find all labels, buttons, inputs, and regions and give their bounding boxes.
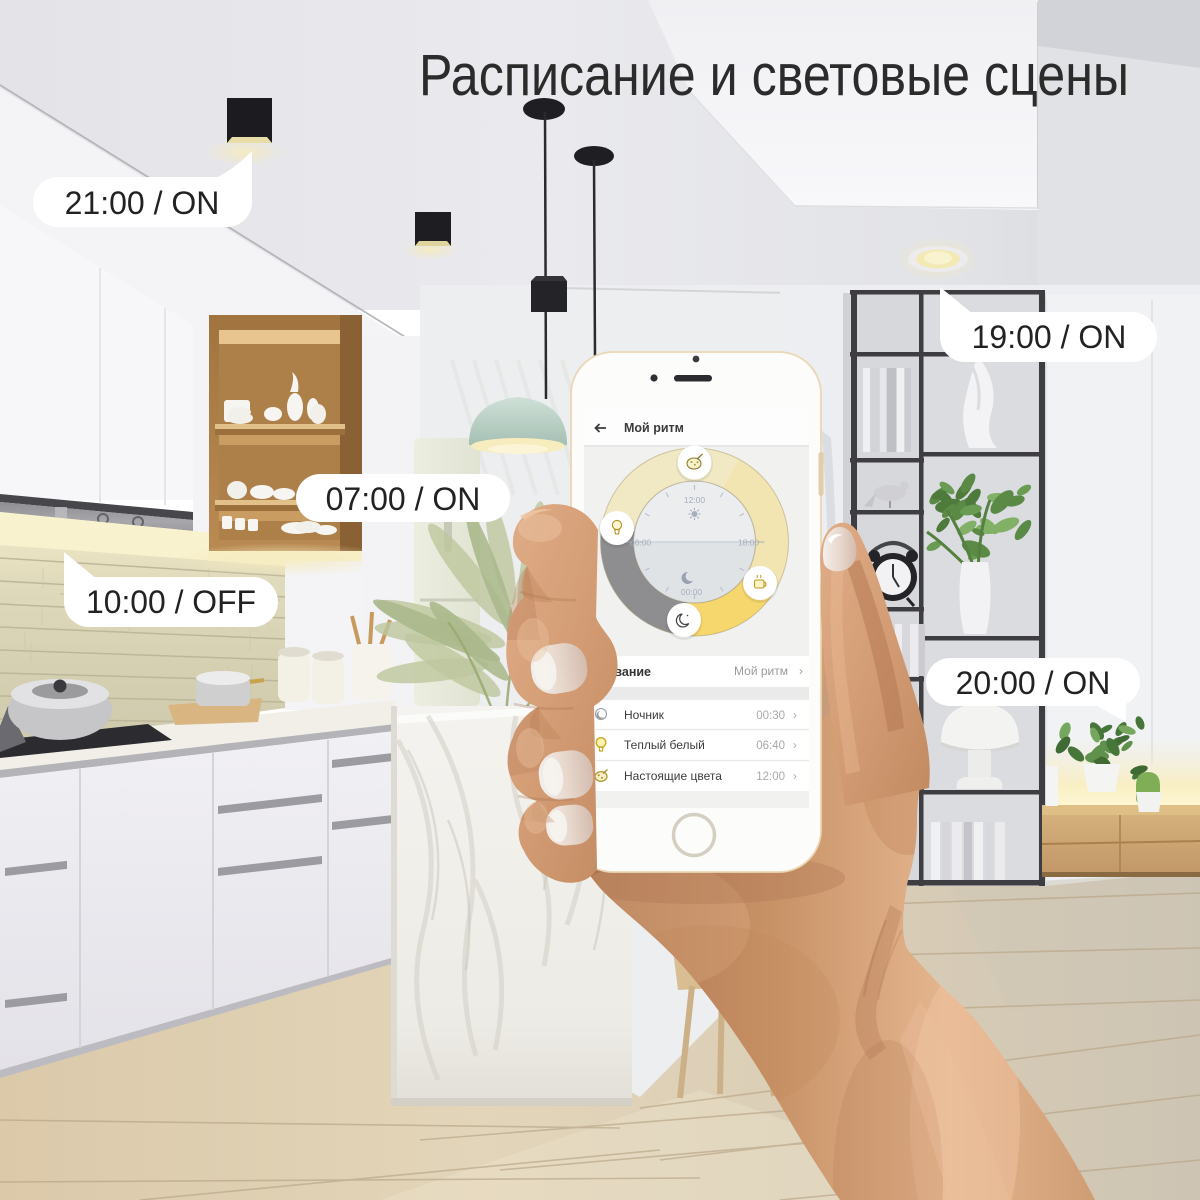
svg-text:›: › — [793, 710, 797, 722]
svg-text:›: › — [793, 771, 797, 783]
svg-text:00:00: 00:00 — [681, 587, 703, 597]
svg-text:›: › — [793, 740, 797, 752]
svg-text:12:00: 12:00 — [756, 771, 785, 783]
svg-text:00:30: 00:30 — [756, 710, 785, 722]
svg-text:Ночник: Ночник — [624, 708, 665, 722]
svg-text:06:00: 06:00 — [630, 538, 652, 548]
svg-text:06:40: 06:40 — [756, 740, 785, 752]
svg-text:12:00: 12:00 — [684, 495, 706, 505]
svg-text:›: › — [799, 664, 803, 678]
svg-text:19:00 / ON: 19:00 / ON — [972, 319, 1127, 355]
svg-text:21:00 / ON: 21:00 / ON — [65, 185, 220, 221]
svg-text:Настоящие цвета: Настоящие цвета — [624, 769, 722, 783]
svg-text:Мой ритм: Мой ритм — [734, 664, 788, 678]
svg-text:07:00 / ON: 07:00 / ON — [326, 481, 481, 517]
svg-text:Теплый белый: Теплый белый — [624, 738, 705, 752]
svg-text:Расписание и световые сцены: Расписание и световые сцены — [419, 43, 1129, 108]
svg-text:10:00 / OFF: 10:00 / OFF — [86, 584, 256, 620]
svg-text:Мой ритм: Мой ритм — [624, 421, 684, 435]
svg-text:20:00 / ON: 20:00 / ON — [956, 665, 1111, 701]
svg-text:18:00: 18:00 — [738, 538, 760, 548]
